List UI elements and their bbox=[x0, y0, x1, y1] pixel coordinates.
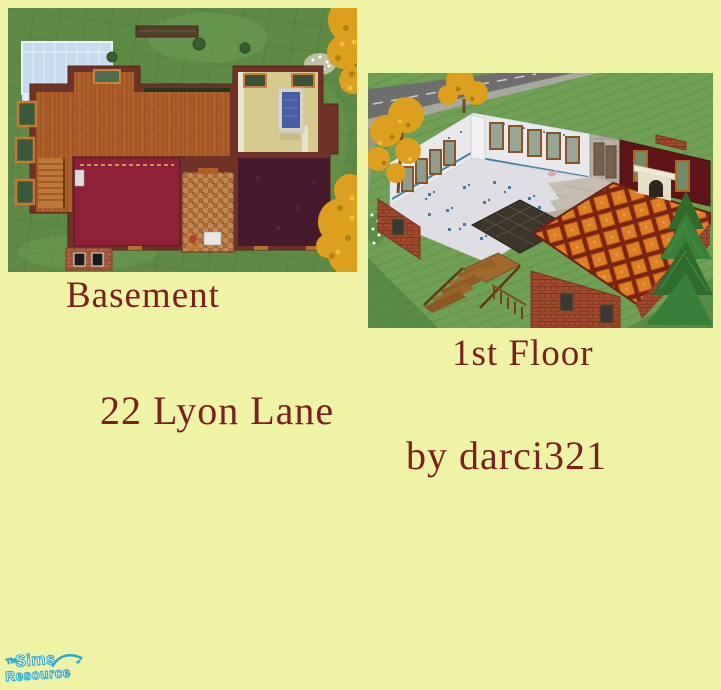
lot-preview-image: Basement 1st Floor 22 Lyon Lane by darci… bbox=[0, 0, 721, 690]
logo-resource: Resource bbox=[5, 666, 71, 684]
crimson-room bbox=[74, 158, 180, 246]
shower-top-view bbox=[278, 88, 304, 140]
basement-stairs bbox=[38, 158, 64, 208]
basement-floorplan-art bbox=[8, 8, 357, 272]
brick-vent bbox=[66, 248, 112, 270]
left-windows bbox=[16, 102, 36, 204]
basement-caption: Basement bbox=[66, 277, 220, 314]
lot-address-caption: 22 Lyon Lane bbox=[100, 391, 334, 431]
first-floor-caption: 1st Floor bbox=[452, 335, 594, 372]
basement-screenshot bbox=[8, 8, 357, 272]
maroon-room bbox=[238, 158, 330, 246]
yellow-room bbox=[238, 72, 318, 152]
sims-resource-logo: The Sims Resource bbox=[1, 649, 99, 690]
skylight bbox=[244, 74, 266, 87]
stone-wall bbox=[590, 134, 620, 185]
garden-plot bbox=[136, 26, 198, 37]
creator-credit-caption: by darci321 bbox=[406, 436, 607, 476]
skylight bbox=[292, 74, 314, 87]
hall-skylight bbox=[94, 70, 120, 83]
first-floor-art bbox=[368, 73, 713, 328]
first-floor-screenshot bbox=[368, 73, 713, 328]
tile-room bbox=[182, 168, 234, 252]
